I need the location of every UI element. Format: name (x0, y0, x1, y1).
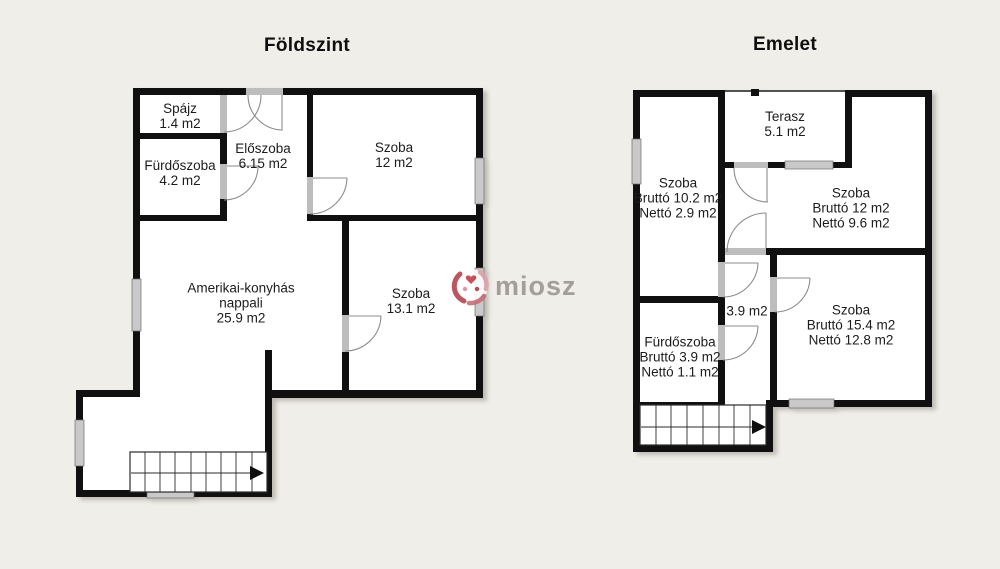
room-label-furdoszoba: Fürdőszoba4.2 m2 (144, 158, 215, 188)
room-label-spajz: Spájz1.4 m2 (159, 101, 200, 131)
room131-door-opening (342, 315, 349, 352)
pantry-door-opening (220, 95, 227, 133)
watermark: miosz (451, 265, 577, 307)
terasz-post (751, 89, 759, 96)
emelet-title: Emelet (753, 34, 817, 56)
room-label-szoba131: Szoba13.1 m2 (387, 286, 436, 316)
room-label-szoba102: SzobaBruttó 10.2 m2Nettó 2.9 m2 (634, 176, 723, 221)
room154-door-opening (770, 277, 777, 312)
room-label-eloszoba: Előszoba6.15 m2 (235, 141, 291, 171)
room-label-furdoszoba-emelet: FürdőszobaBruttó 3.9 m2Nettó 1.1 m2 (639, 335, 720, 380)
room12-door-opening (307, 177, 313, 214)
foldszint-title: Földszint (264, 35, 350, 57)
stairs-icon (640, 405, 766, 445)
room-label-hall: 3.9 m2 (726, 304, 767, 319)
terasz-door-opening (734, 162, 768, 168)
bathroom-door-opening (220, 164, 227, 199)
window-icon (789, 399, 834, 408)
room-label-szoba12e: SzobaBruttó 12 m2Nettó 9.6 m2 (812, 186, 889, 231)
window-icon (132, 279, 141, 331)
room102-door-opening (718, 262, 725, 297)
room-label-terasz: Terasz5.1 m2 (764, 109, 805, 139)
window-icon (75, 420, 84, 466)
room-label-nappali: Amerikai-konyhásnappali25.9 m2 (187, 281, 294, 326)
emelet-floorplan (632, 89, 932, 452)
floorplan-page: Földszint Emelet Spájz1.4 m2 Fürdőszoba4… (0, 0, 1000, 569)
miosz-logo-icon (451, 265, 491, 307)
stairs-icon (130, 452, 267, 492)
room-label-szoba154: SzobaBruttó 15.4 m2Nettó 12.8 m2 (807, 303, 896, 348)
entrance-door-opening (246, 88, 283, 95)
window-icon (785, 161, 833, 169)
watermark-text: miosz (495, 273, 577, 300)
window-icon (475, 158, 484, 204)
room-label-szoba12: Szoba12 m2 (375, 140, 413, 170)
hall-door-opening (725, 248, 766, 255)
